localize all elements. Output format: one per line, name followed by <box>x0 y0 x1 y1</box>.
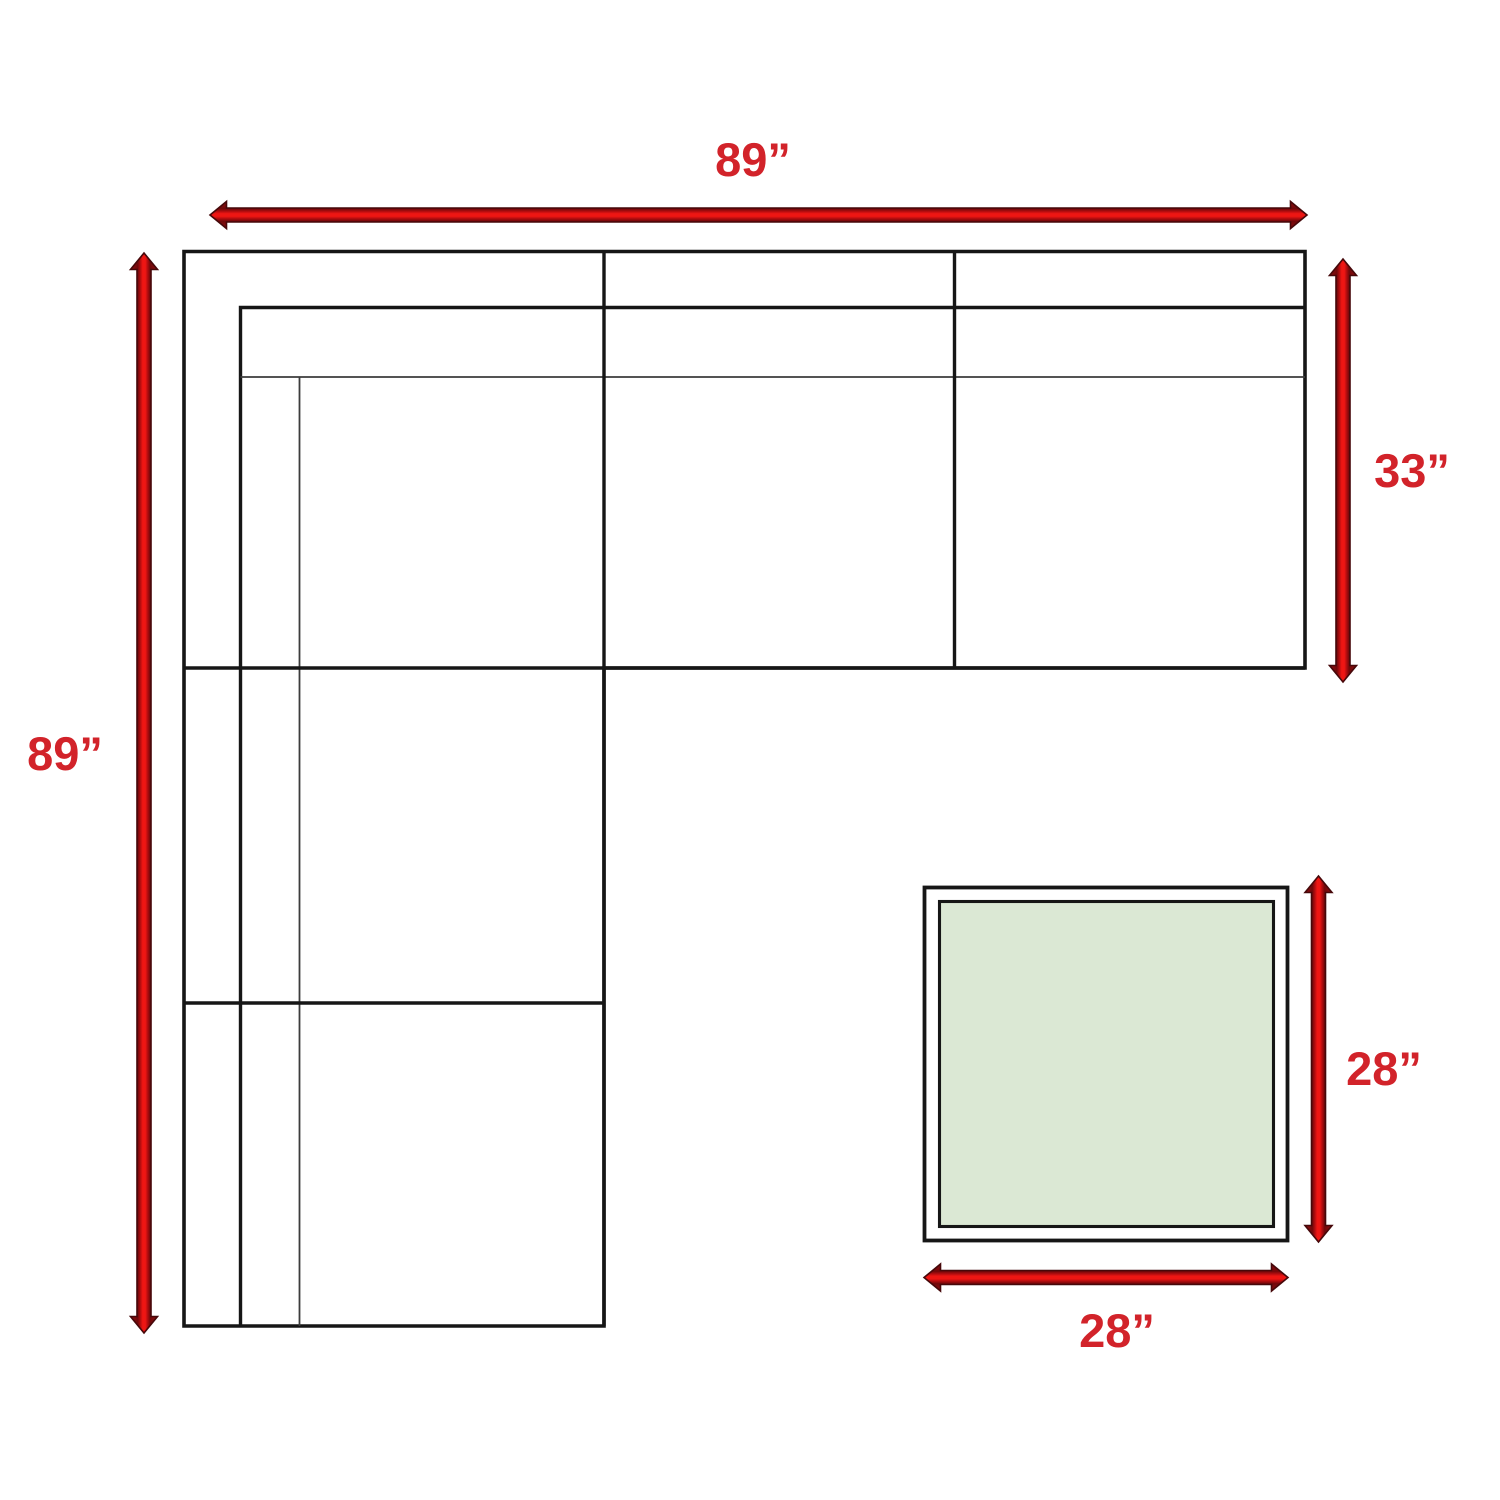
svg-text:28”: 28” <box>1079 1304 1155 1357</box>
svg-text:28”: 28” <box>1346 1042 1422 1095</box>
svg-text:89”: 89” <box>27 727 103 780</box>
svg-text:89”: 89” <box>715 133 791 186</box>
svg-text:33”: 33” <box>1374 444 1450 497</box>
